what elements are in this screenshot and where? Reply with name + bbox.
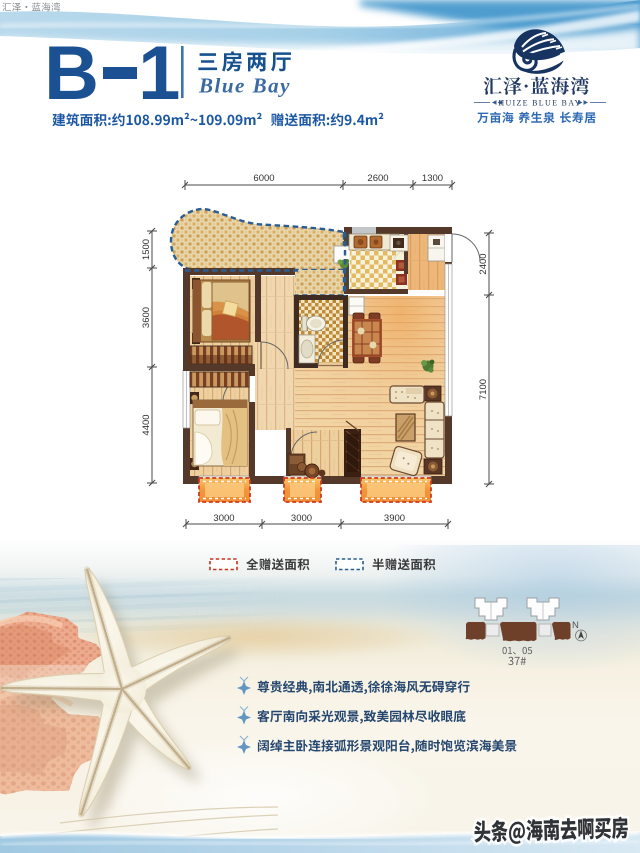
svg-text:4400: 4400: [141, 414, 152, 435]
svg-text:N: N: [572, 620, 579, 631]
svg-text:2600: 2600: [367, 173, 388, 184]
svg-text:3000: 3000: [291, 513, 312, 524]
svg-text:6000: 6000: [253, 173, 274, 184]
svg-text:B: B: [44, 31, 99, 116]
svg-text:1500: 1500: [141, 239, 152, 260]
svg-text:3600: 3600: [141, 307, 152, 328]
svg-text:3900: 3900: [384, 513, 405, 524]
svg-text:1: 1: [138, 31, 180, 116]
svg-text:1300: 1300: [422, 173, 443, 184]
svg-text:3000: 3000: [213, 513, 234, 524]
svg-text:7100: 7100: [478, 379, 489, 400]
